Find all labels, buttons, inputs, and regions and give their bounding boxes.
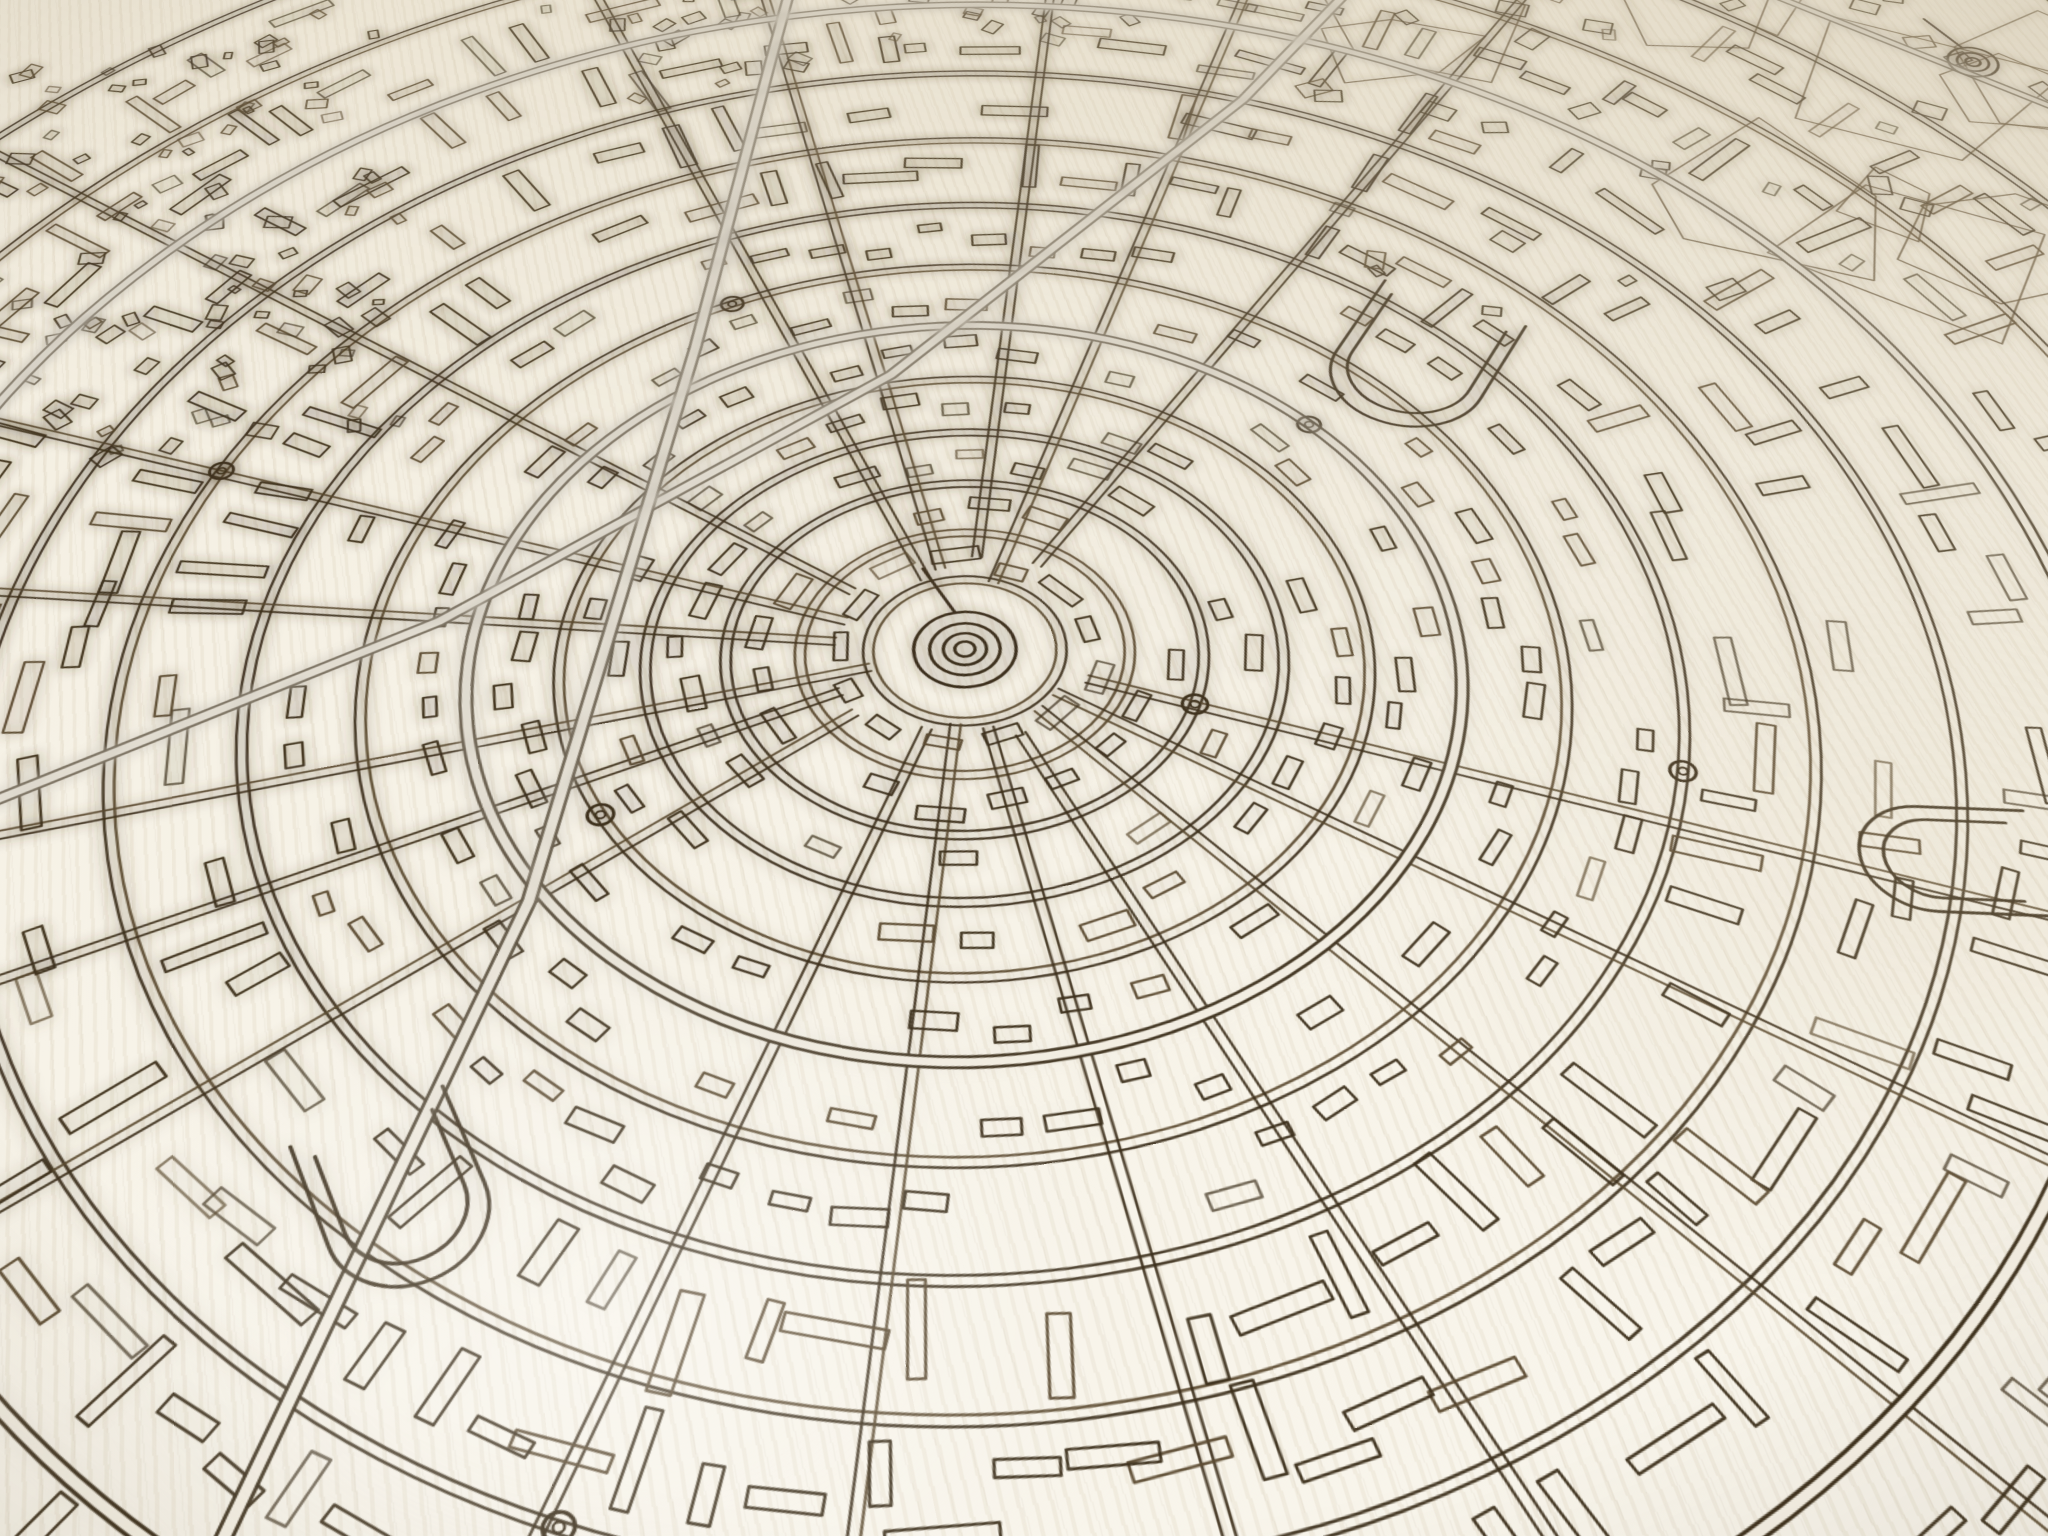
engraved-wood-map-photo [0,0,2048,1536]
city-map-engraving [0,0,2048,1536]
wood-map-plane [0,0,2048,1536]
